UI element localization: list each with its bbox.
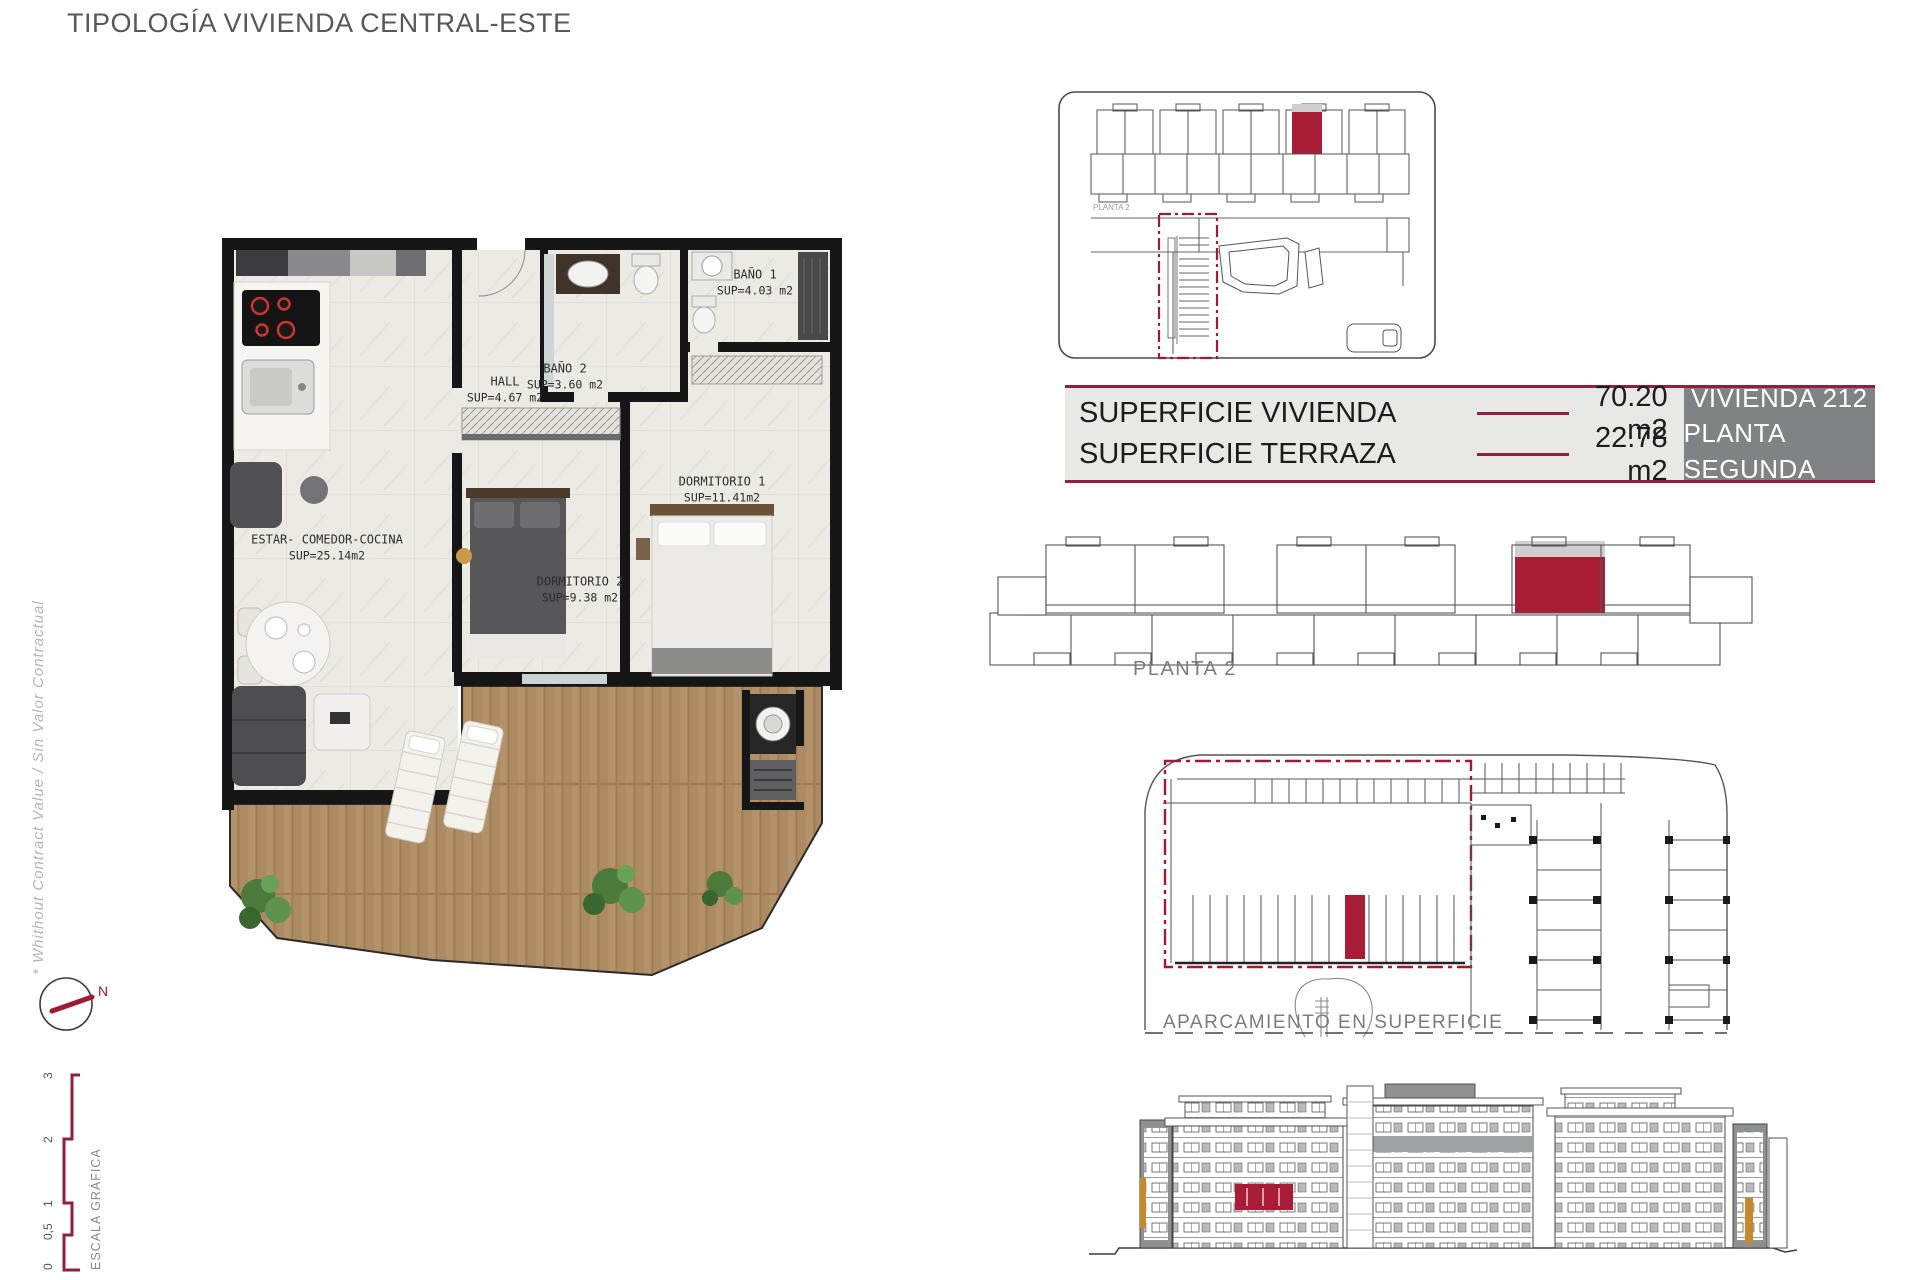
- planta2-caption: PLANTA 2: [1133, 658, 1237, 681]
- site-plan-highlight-unit: [1292, 112, 1322, 154]
- floor-plan: BAÑO 1SUP=4.03 m2 BAÑO 2SUP=3.60 m2 HALL…: [222, 238, 842, 988]
- room-label-dormitorio2: DORMITORIO 2SUP=9.38 m2: [537, 575, 624, 606]
- parking-highlight-stall: [1345, 895, 1365, 959]
- svg-text:2: 2: [41, 1136, 55, 1143]
- building-elevation: [1085, 1058, 1800, 1273]
- page-title: TIPOLOGÍA VIVIENDA CENTRAL-ESTE: [67, 8, 572, 39]
- planta2-highlight-unit: [1515, 557, 1605, 613]
- parking-plan: [925, 745, 1805, 1040]
- room-label-dormitorio1: DORMITORIO 1SUP=11.41m2: [679, 475, 766, 506]
- scale-bar-title: ESCALA GRÁFICA: [88, 1148, 103, 1270]
- scale-bar: 0 0,5 1 2 3 ESCALA GRÁFICA: [34, 1062, 124, 1280]
- site-plan: PLANTA 2: [1047, 86, 1447, 376]
- compass-icon: N: [36, 970, 121, 1038]
- unit-id-box: VIVIENDA 212 PLANTA SEGUNDA: [1684, 388, 1875, 480]
- room-label-hall: HALLSUP=4.67 m2: [467, 375, 543, 406]
- svg-text:3: 3: [41, 1072, 55, 1079]
- unit-floor: PLANTA SEGUNDA: [1684, 416, 1875, 486]
- disclaimer-note: * Whithout Contract Value / Sin Valor Co…: [30, 545, 47, 975]
- parking-caption: APARCAMIENTO EN SUPERFICIE: [1163, 1012, 1503, 1034]
- planta2-key-plan: [930, 515, 1780, 685]
- svg-text:0: 0: [41, 1263, 55, 1270]
- summary-leader-line: [1477, 412, 1569, 415]
- room-label-bano1: BAÑO 1SUP=4.03 m2: [717, 268, 793, 299]
- room-label-estar: ESTAR- COMEDOR-COCINASUP=25.14m2: [251, 533, 403, 564]
- surface-summary-table: SUPERFICIE VIVIENDA 70.20 m2 SUPERFICIE …: [1065, 385, 1875, 483]
- svg-text:0,5: 0,5: [41, 1223, 55, 1240]
- summary-label: SUPERFICIE TERRAZA: [1079, 438, 1477, 471]
- summary-row-vivienda: SUPERFICIE VIVIENDA 70.20 m2: [1079, 393, 1684, 434]
- compass-north-label: N: [98, 983, 108, 999]
- summary-row-terraza: SUPERFICIE TERRAZA 22.78 m2: [1079, 434, 1684, 475]
- summary-label: SUPERFICIE VIVIENDA: [1079, 397, 1477, 430]
- plan-sheet: TIPOLOGÍA VIVIENDA CENTRAL-ESTE: [0, 0, 1920, 1280]
- unit-number: VIVIENDA 212: [1691, 381, 1868, 416]
- floor-plan-drawing: [222, 238, 842, 988]
- svg-text:1: 1: [41, 1200, 55, 1207]
- elevation-highlight-unit: [1235, 1184, 1293, 1210]
- site-plan-caption: PLANTA 2: [1093, 203, 1130, 212]
- summary-value: 22.78 m2: [1595, 422, 1684, 488]
- summary-leader-line: [1477, 453, 1569, 456]
